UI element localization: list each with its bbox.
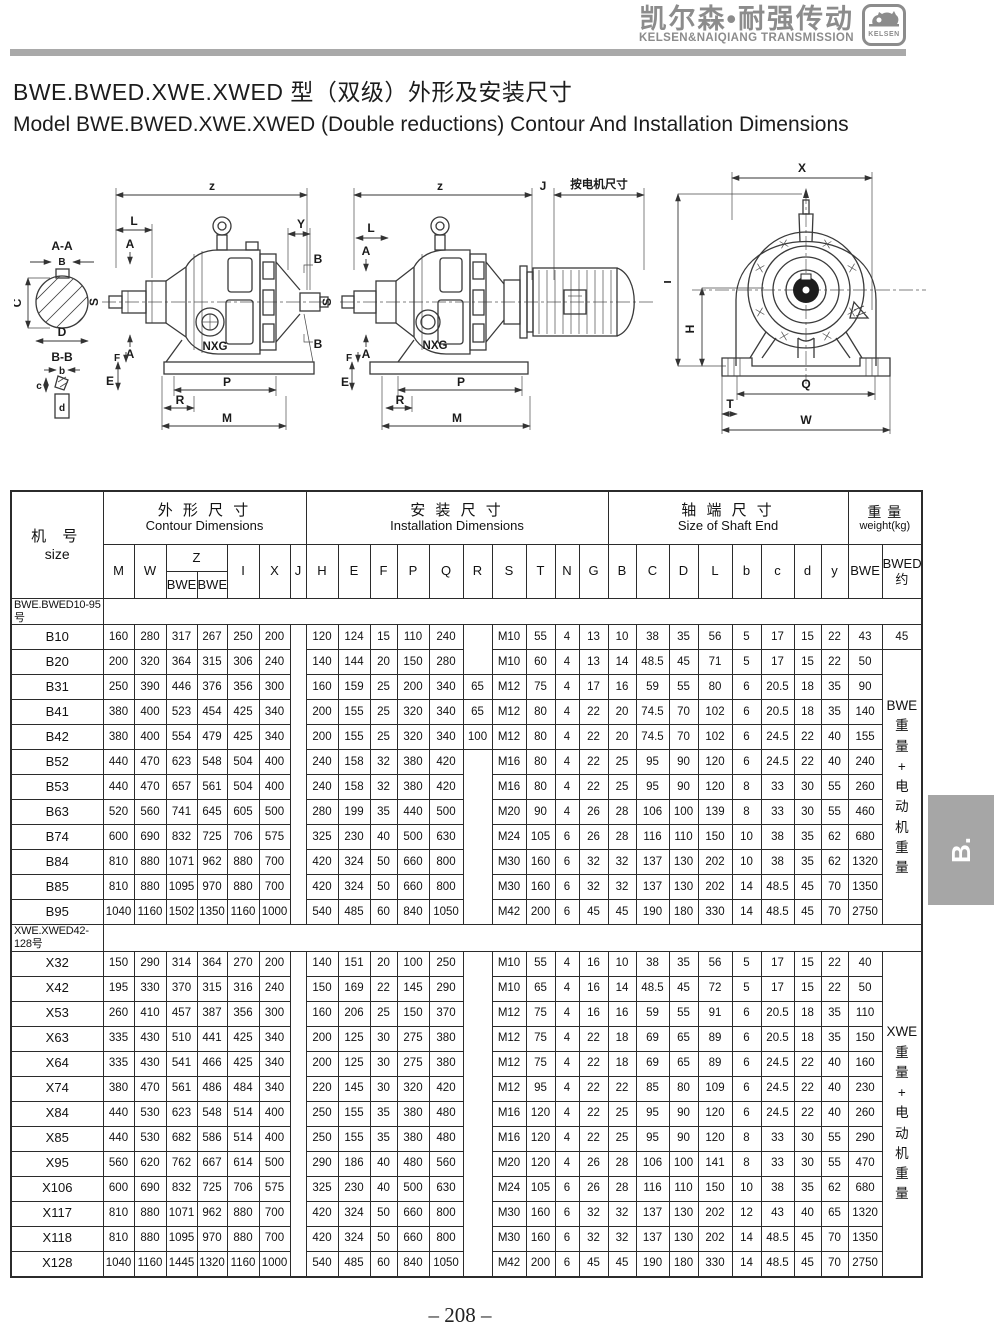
table-cell: 425 bbox=[227, 700, 259, 725]
table-cell: 267 bbox=[197, 625, 227, 650]
table-cell: 810 bbox=[103, 1226, 134, 1251]
table-cell bbox=[290, 1251, 306, 1277]
table-cell: 387 bbox=[197, 1001, 227, 1026]
group-header-shaft-end: 轴 端 尺 寸 Size of Shaft End bbox=[608, 491, 848, 545]
table-cell: 600 bbox=[103, 825, 134, 850]
table-cell: 6 bbox=[732, 750, 761, 775]
table-cell: 290 bbox=[306, 1151, 338, 1176]
table-cell: 1160 bbox=[134, 900, 166, 925]
table-cell: 158 bbox=[338, 750, 370, 775]
dim-label-Q: Q bbox=[801, 377, 810, 391]
table-cell: 280 bbox=[134, 625, 166, 650]
table-cell: 38 bbox=[636, 951, 669, 976]
table-cell: 741 bbox=[166, 800, 197, 825]
table-cell: 90 bbox=[669, 750, 698, 775]
dim-label-M: M bbox=[222, 411, 232, 425]
brand-text: 凯尔森•耐强传动 KELSEN&NAIQIANG TRANSMISSION bbox=[639, 6, 854, 45]
table-cell: 25 bbox=[370, 700, 397, 725]
table-cell: 800 bbox=[429, 1226, 463, 1251]
table-cell: M42 bbox=[492, 900, 526, 925]
table-cell: 18 bbox=[608, 1026, 636, 1051]
table-cell: 340 bbox=[259, 1076, 290, 1101]
table-cell: 18 bbox=[794, 1001, 821, 1026]
table-cell: 614 bbox=[227, 1151, 259, 1176]
table-cell: M30 bbox=[492, 875, 526, 900]
table-cell: 65 bbox=[821, 1201, 848, 1226]
table-cell: 400 bbox=[259, 775, 290, 800]
table-cell: 4 bbox=[555, 700, 579, 725]
table-cell: 160 bbox=[526, 875, 555, 900]
table-cell: 335 bbox=[103, 1051, 134, 1076]
table-cell: 116 bbox=[636, 1176, 669, 1201]
table-cell: 40 bbox=[370, 1151, 397, 1176]
table-cell: 6 bbox=[732, 1076, 761, 1101]
table-cell: 56 bbox=[698, 625, 732, 650]
table-cell: 1000 bbox=[259, 900, 290, 925]
table-cell: 470 bbox=[848, 1151, 882, 1176]
table-cell: 667 bbox=[197, 1151, 227, 1176]
table-cell: 315 bbox=[197, 976, 227, 1001]
table-cell: 16 bbox=[608, 675, 636, 700]
table-cell: 380 bbox=[103, 1076, 134, 1101]
table-cell: 706 bbox=[227, 825, 259, 850]
table-cell: 420 bbox=[306, 875, 338, 900]
table-cell: 80 bbox=[669, 1076, 698, 1101]
table-cell: M10 bbox=[492, 976, 526, 1001]
table-cell: 500 bbox=[259, 1151, 290, 1176]
table-cell: 425 bbox=[227, 725, 259, 750]
dim-label-I: I bbox=[664, 280, 674, 283]
table-cell: 300 bbox=[259, 1001, 290, 1026]
dim-label-J: J bbox=[540, 179, 547, 193]
table-cell: 25 bbox=[608, 1126, 636, 1151]
table-cell bbox=[290, 650, 306, 675]
table-cell: 202 bbox=[698, 875, 732, 900]
table-cell: 55 bbox=[821, 1126, 848, 1151]
table-cell: 22 bbox=[794, 1101, 821, 1126]
table-cell: 4 bbox=[555, 625, 579, 650]
table-cell: 420 bbox=[306, 850, 338, 875]
table-cell: 22 bbox=[794, 1076, 821, 1101]
table-cell: 500 bbox=[397, 1176, 429, 1201]
table-cell: 470 bbox=[134, 775, 166, 800]
table-cell: 380 bbox=[397, 775, 429, 800]
table-cell: 832 bbox=[166, 825, 197, 850]
table-cell: 45 bbox=[579, 1251, 608, 1277]
table-cell: 32 bbox=[579, 1226, 608, 1251]
table-cell: 18 bbox=[794, 700, 821, 725]
table-cell: 22 bbox=[821, 650, 848, 675]
table-cell: 15 bbox=[370, 625, 397, 650]
table-cell: 33 bbox=[761, 775, 794, 800]
table-cell: 106 bbox=[636, 800, 669, 825]
col-header: J bbox=[290, 545, 306, 599]
table-cell bbox=[463, 825, 492, 850]
table-cell: 485 bbox=[338, 1251, 370, 1277]
table-cell: 202 bbox=[698, 850, 732, 875]
dim-label-R: R bbox=[396, 393, 405, 407]
table-cell: 206 bbox=[338, 1001, 370, 1026]
table-cell: 300 bbox=[259, 675, 290, 700]
group-header-contour: 外 形 尺 寸 Contour Dimensions bbox=[103, 491, 306, 545]
row-size-label: B84 bbox=[11, 850, 103, 875]
table-cell bbox=[290, 1176, 306, 1201]
table-row: X7438047056148648434022014530320420M1295… bbox=[11, 1076, 922, 1101]
table-cell: 340 bbox=[259, 1051, 290, 1076]
table-cell: 22 bbox=[579, 1101, 608, 1126]
table-cell: 1040 bbox=[103, 1251, 134, 1277]
table-cell: M30 bbox=[492, 1226, 526, 1251]
table-cell: 13 bbox=[579, 625, 608, 650]
table-cell: 24.5 bbox=[761, 1076, 794, 1101]
table-cell: 320 bbox=[397, 725, 429, 750]
table-row: X6333543051044142534020012530275380M1275… bbox=[11, 1026, 922, 1051]
table-cell: 80 bbox=[526, 775, 555, 800]
table-cell: 330 bbox=[698, 900, 732, 925]
table-cell: 186 bbox=[338, 1151, 370, 1176]
table-cell: 560 bbox=[134, 800, 166, 825]
col-header: G bbox=[579, 545, 608, 599]
diagram-side-view-with-motor: z J 按电机尺寸 L A A bbox=[340, 150, 658, 450]
table-cell: 22 bbox=[579, 775, 608, 800]
table-cell: 55 bbox=[526, 625, 555, 650]
table-cell: 95 bbox=[636, 1126, 669, 1151]
table-cell: 324 bbox=[338, 1201, 370, 1226]
table-cell: 75 bbox=[526, 1026, 555, 1051]
table-cell: 200 bbox=[526, 900, 555, 925]
table-cell: 62 bbox=[821, 825, 848, 850]
table-cell: 962 bbox=[197, 1201, 227, 1226]
table-cell: 762 bbox=[166, 1151, 197, 1176]
table-cell: 45 bbox=[608, 900, 636, 925]
table-cell: 90 bbox=[848, 675, 882, 700]
table-cell: 62 bbox=[821, 1176, 848, 1201]
table-cell: 700 bbox=[259, 875, 290, 900]
col-header: E bbox=[338, 545, 370, 599]
table-cell: 400 bbox=[259, 1126, 290, 1151]
table-cell: 880 bbox=[134, 850, 166, 875]
table-cell: 340 bbox=[259, 1026, 290, 1051]
table-cell: 370 bbox=[429, 1001, 463, 1026]
table-cell bbox=[463, 1176, 492, 1201]
table-cell: 5 bbox=[732, 650, 761, 675]
table-cell: 4 bbox=[555, 951, 579, 976]
table-cell: 35 bbox=[794, 850, 821, 875]
table-cell: 200 bbox=[397, 675, 429, 700]
col-header: F bbox=[370, 545, 397, 599]
table-cell: 59 bbox=[636, 675, 669, 700]
table-cell: 48.5 bbox=[636, 976, 669, 1001]
table-cell: 24.5 bbox=[761, 1101, 794, 1126]
table-cell: 160 bbox=[306, 675, 338, 700]
table-cell: 45 bbox=[794, 1251, 821, 1277]
table-cell: 80 bbox=[526, 700, 555, 725]
table-cell: 15 bbox=[794, 650, 821, 675]
merged-weight-note: XWE 重 量 + 电 动 机 重 量 bbox=[882, 951, 922, 1277]
table-cell: 195 bbox=[103, 976, 134, 1001]
table-row: X9556062076266761450029018640480560M2012… bbox=[11, 1151, 922, 1176]
table-cell: 160 bbox=[526, 850, 555, 875]
table-cell: 32 bbox=[608, 850, 636, 875]
table-cell: 22 bbox=[794, 750, 821, 775]
table-cell: 380 bbox=[429, 1051, 463, 1076]
page-number: – 208 – bbox=[0, 1303, 920, 1328]
table-cell: 32 bbox=[579, 875, 608, 900]
table-cell: 130 bbox=[669, 875, 698, 900]
table-cell: 20.5 bbox=[761, 675, 794, 700]
row-size-label: B63 bbox=[11, 800, 103, 825]
row-size-label: B42 bbox=[11, 725, 103, 750]
table-row: X5326041045738735630016020625150370M1275… bbox=[11, 1001, 922, 1026]
table-cell: 40 bbox=[821, 725, 848, 750]
table-cell: 706 bbox=[227, 1176, 259, 1201]
dim-label-Y: Y bbox=[297, 217, 305, 231]
table-cell: 89 bbox=[698, 1051, 732, 1076]
technical-drawings: A-A B C D S B-B b c d bbox=[14, 150, 990, 455]
table-row: B5344047065756150440024015832380420M1680… bbox=[11, 775, 922, 800]
row-size-label: B31 bbox=[11, 675, 103, 700]
table-cell: 120 bbox=[526, 1151, 555, 1176]
table-cell: 356 bbox=[227, 1001, 259, 1026]
group-header-weight: 重 量 weight(kg) bbox=[848, 491, 922, 545]
table-cell: 280 bbox=[429, 650, 463, 675]
table-cell: 316 bbox=[227, 976, 259, 1001]
dim-label-B: B bbox=[58, 257, 65, 268]
table-cell: 630 bbox=[429, 1176, 463, 1201]
table-cell: 40 bbox=[821, 750, 848, 775]
table-cell: 22 bbox=[579, 750, 608, 775]
table-cell: 85 bbox=[636, 1076, 669, 1101]
dim-label-E: E bbox=[341, 375, 349, 389]
dim-label-R: R bbox=[176, 393, 185, 407]
table-cell: 62 bbox=[821, 850, 848, 875]
table-cell: 470 bbox=[134, 750, 166, 775]
table-cell: 380 bbox=[103, 700, 134, 725]
table-cell: M30 bbox=[492, 1201, 526, 1226]
row-size-label: X42 bbox=[11, 976, 103, 1001]
table-cell: 20 bbox=[370, 650, 397, 675]
table-cell: 32 bbox=[579, 1201, 608, 1226]
table-cell: 155 bbox=[338, 725, 370, 750]
table-cell: 25 bbox=[370, 1001, 397, 1026]
table-cell: M42 bbox=[492, 1251, 526, 1277]
dim-label-F: F bbox=[114, 353, 120, 364]
table-cell: 24.5 bbox=[761, 750, 794, 775]
table-cell: 840 bbox=[397, 900, 429, 925]
table-cell: 4 bbox=[555, 775, 579, 800]
table-cell: 440 bbox=[103, 775, 134, 800]
table-cell: 270 bbox=[227, 951, 259, 976]
table-cell: 100 bbox=[669, 1151, 698, 1176]
table-cell: 1095 bbox=[166, 875, 197, 900]
cutline-label-A-top: A bbox=[362, 244, 371, 258]
table-cell: 400 bbox=[134, 700, 166, 725]
table-cell bbox=[290, 675, 306, 700]
kelsen-logo: KELSEN bbox=[862, 4, 906, 46]
table-cell: 682 bbox=[166, 1126, 197, 1151]
table-cell: 50 bbox=[370, 875, 397, 900]
table-cell: 65 bbox=[463, 675, 492, 700]
table-cell: 460 bbox=[848, 800, 882, 825]
table-cell: 150 bbox=[698, 825, 732, 850]
col-header: T bbox=[526, 545, 555, 599]
dim-label-W: W bbox=[800, 413, 812, 427]
table-cell: 10 bbox=[732, 825, 761, 850]
page-title: BWE.BWED.XWE.XWED 型（双级）外形及安装尺寸 Model BWE… bbox=[13, 76, 849, 140]
table-cell: 32 bbox=[370, 750, 397, 775]
row-size-label: X32 bbox=[11, 951, 103, 976]
table-cell: 137 bbox=[636, 1226, 669, 1251]
table-cell: 35 bbox=[669, 625, 698, 650]
table-row: X118810880109597088070042032450660800M30… bbox=[11, 1226, 922, 1251]
table-cell: 72 bbox=[698, 976, 732, 1001]
table-cell: 810 bbox=[103, 1201, 134, 1226]
table-cell: 4 bbox=[555, 800, 579, 825]
table-body: BWE.BWED10-95号B1016028031726725020012012… bbox=[11, 599, 922, 1277]
table-cell: 380 bbox=[429, 1026, 463, 1051]
table-cell: M30 bbox=[492, 850, 526, 875]
kelsen-logo-icon bbox=[867, 9, 901, 31]
table-cell: 14 bbox=[608, 976, 636, 1001]
table-cell: 22 bbox=[821, 976, 848, 1001]
table-cell: 240 bbox=[848, 750, 882, 775]
table-cell: 4 bbox=[555, 1051, 579, 1076]
table-cell: 1502 bbox=[166, 900, 197, 925]
table-cell: M10 bbox=[492, 650, 526, 675]
table-cell: 4 bbox=[555, 1001, 579, 1026]
col-header: M bbox=[103, 545, 134, 599]
table-cell: 200 bbox=[259, 951, 290, 976]
table-cell: 25 bbox=[608, 775, 636, 800]
table-cell: 48.5 bbox=[636, 650, 669, 675]
table-cell: 1160 bbox=[227, 1251, 259, 1277]
table-cell: 340 bbox=[429, 725, 463, 750]
table-cell: 16 bbox=[608, 1001, 636, 1026]
table-cell: 6 bbox=[555, 1201, 579, 1226]
table-cell: 35 bbox=[370, 1101, 397, 1126]
table-cell: 2750 bbox=[848, 1251, 882, 1277]
cutline-label-A-top: A bbox=[126, 237, 135, 251]
table-cell: 623 bbox=[166, 750, 197, 775]
table-cell: 100 bbox=[669, 800, 698, 825]
table-cell: 32 bbox=[370, 775, 397, 800]
table-cell: 832 bbox=[166, 1176, 197, 1201]
table-cell: 130 bbox=[669, 1226, 698, 1251]
table-cell: 400 bbox=[259, 1101, 290, 1126]
table-cell: 70 bbox=[669, 725, 698, 750]
table-cell: 30 bbox=[370, 1076, 397, 1101]
page-title-cn: BWE.BWED.XWE.XWED 型（双级）外形及安装尺寸 bbox=[13, 76, 849, 109]
table-cell: 106 bbox=[636, 1151, 669, 1176]
table-cell: 1160 bbox=[134, 1251, 166, 1277]
table-cell: 14 bbox=[732, 1251, 761, 1277]
dim-label-X: X bbox=[798, 161, 806, 175]
col-header: N bbox=[555, 545, 579, 599]
row-size-label: X64 bbox=[11, 1051, 103, 1076]
table-cell: M16 bbox=[492, 1101, 526, 1126]
table-cell: 202 bbox=[698, 1226, 732, 1251]
table-cell: 6 bbox=[732, 1001, 761, 1026]
table-cell: 200 bbox=[306, 725, 338, 750]
table-cell: 120 bbox=[698, 750, 732, 775]
table-cell: 17 bbox=[761, 976, 794, 1001]
table-cell: 95 bbox=[636, 775, 669, 800]
table-cell: 6 bbox=[555, 825, 579, 850]
col-header-Z-sub: BWE bbox=[166, 572, 197, 599]
table-cell: 548 bbox=[197, 1101, 227, 1126]
table-cell: 440 bbox=[103, 1126, 134, 1151]
table-cell: 586 bbox=[197, 1126, 227, 1151]
table-cell: 50 bbox=[370, 850, 397, 875]
table-cell: 35 bbox=[821, 1001, 848, 1026]
table-cell: 356 bbox=[227, 675, 259, 700]
table-cell: 470 bbox=[134, 1076, 166, 1101]
table-cell bbox=[463, 1126, 492, 1151]
table-cell: 660 bbox=[397, 850, 429, 875]
table-cell: 110 bbox=[669, 825, 698, 850]
table-cell: 110 bbox=[397, 625, 429, 650]
table-cell: 60 bbox=[526, 650, 555, 675]
row-size-label: B74 bbox=[11, 825, 103, 850]
dim-label-M: M bbox=[452, 411, 462, 425]
table-cell: 95 bbox=[636, 1101, 669, 1126]
table-cell: 240 bbox=[306, 750, 338, 775]
table-row: B951040116015021350116010005404856084010… bbox=[11, 900, 922, 925]
diagram-front-view: X I H bbox=[664, 150, 990, 450]
col-header: H bbox=[306, 545, 338, 599]
table-cell: 95 bbox=[526, 1076, 555, 1101]
table-cell: 6 bbox=[732, 675, 761, 700]
table-cell: 32 bbox=[608, 1226, 636, 1251]
table-cell: 32 bbox=[608, 1201, 636, 1226]
kelsen-logo-text: KELSEN bbox=[865, 31, 903, 38]
table-cell: 18 bbox=[608, 1051, 636, 1076]
table-cell: 30 bbox=[370, 1026, 397, 1051]
table-cell: 6 bbox=[732, 1101, 761, 1126]
table-cell: 40 bbox=[370, 825, 397, 850]
merged-weight-note: BWE 重 量 + 电 动 机 重 量 bbox=[882, 650, 922, 925]
table-cell: 8 bbox=[732, 775, 761, 800]
table-cell: 155 bbox=[338, 700, 370, 725]
table-cell: 8 bbox=[732, 1126, 761, 1151]
table-cell: 30 bbox=[794, 775, 821, 800]
table-cell: 970 bbox=[197, 875, 227, 900]
table-cell: 105 bbox=[526, 825, 555, 850]
table-cell: 330 bbox=[134, 976, 166, 1001]
table-cell: 30 bbox=[794, 1151, 821, 1176]
table-cell: 230 bbox=[338, 825, 370, 850]
dim-label-S: S bbox=[87, 298, 101, 306]
table-cell: 155 bbox=[338, 1101, 370, 1126]
size-column-header: 机 号 size bbox=[11, 491, 103, 599]
table-cell: 80 bbox=[526, 725, 555, 750]
table-cell: 140 bbox=[306, 650, 338, 675]
table-cell: 45 bbox=[794, 900, 821, 925]
col-header-Z: Z bbox=[166, 545, 227, 572]
dim-label-P: P bbox=[457, 375, 465, 389]
table-cell: 20 bbox=[370, 951, 397, 976]
table-cell: 523 bbox=[166, 700, 197, 725]
header-divider-bar bbox=[10, 49, 906, 56]
table-cell: 250 bbox=[306, 1126, 338, 1151]
table-cell: 514 bbox=[227, 1126, 259, 1151]
table-cell: 1320 bbox=[848, 1201, 882, 1226]
table-cell: 380 bbox=[397, 1101, 429, 1126]
table-cell: 26 bbox=[579, 1176, 608, 1201]
table-cell: 100 bbox=[397, 951, 429, 976]
table-cell: 10 bbox=[732, 1176, 761, 1201]
table-cell: 48.5 bbox=[761, 1251, 794, 1277]
